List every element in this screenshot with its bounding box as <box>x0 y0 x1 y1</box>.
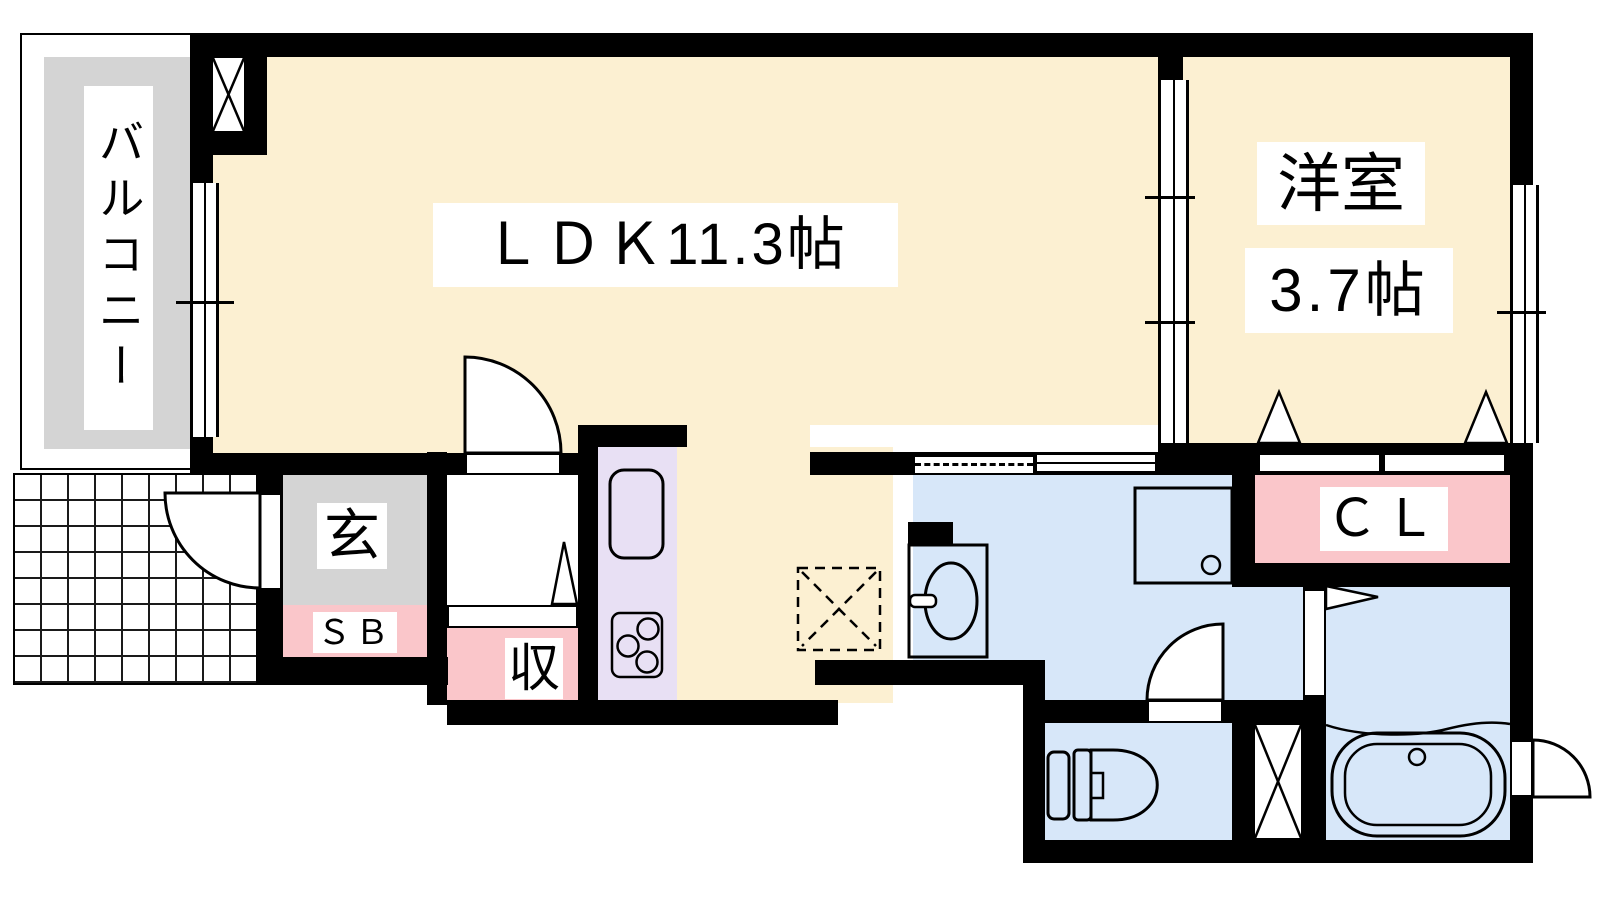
entry-door-slab <box>258 493 282 590</box>
window-balcony <box>190 183 219 437</box>
label-storage: 収 <box>505 638 563 699</box>
label-ldk: ＬＤＫ11.3帖 <box>433 203 898 287</box>
wall-toilet-west <box>1023 660 1045 863</box>
wall-genkan-east <box>427 452 447 705</box>
wall-south <box>1023 840 1533 863</box>
room-washroom <box>913 475 1232 660</box>
storage-door-triangle <box>552 542 577 604</box>
washroom-sliding-door <box>913 455 1035 475</box>
wall-ldk-south <box>447 700 838 725</box>
label-shoe-box: ＳＢ <box>313 612 397 653</box>
bath-exterior-door-arc <box>1533 740 1590 797</box>
room-washroom-east <box>1232 587 1303 700</box>
window-tick <box>1145 321 1195 324</box>
wall-partition-stub-top <box>1158 57 1183 82</box>
pipe-space-box-northwest <box>211 56 246 133</box>
wall-kitchen-west <box>578 425 598 705</box>
window-western-east <box>1510 185 1539 443</box>
room-ldk-lower-strip <box>213 425 578 455</box>
wall-vanity-south <box>815 660 1045 685</box>
bath-folding-door <box>1303 589 1326 697</box>
wall-washroom-pillar <box>908 522 953 545</box>
room-washroom-lower <box>1045 660 1232 702</box>
entrance-porch-tiles <box>13 473 258 685</box>
window-tick <box>176 301 234 304</box>
ldk-genkan-door-slab <box>465 453 561 475</box>
wall-closet-bath <box>1232 563 1533 587</box>
bath-exterior-door-slab <box>1510 740 1533 797</box>
closet-sliding-panel-left <box>1258 453 1381 473</box>
wall-north <box>190 33 1533 57</box>
storage-folding-door <box>447 605 578 628</box>
room-bath <box>1326 587 1510 840</box>
window-tick <box>1145 196 1195 199</box>
label-western-room: 洋室 <box>1257 142 1425 225</box>
pipe-space-box-southeast <box>1253 723 1303 840</box>
washroom-sliding-pocket <box>1035 453 1157 473</box>
window-partition-ldk-western <box>1158 80 1189 443</box>
wall-partition-stub-bottom <box>1158 440 1183 475</box>
window-tick <box>1497 311 1546 314</box>
label-western-room-size: 3.7帖 <box>1245 248 1453 333</box>
label-entrance: 玄 <box>317 503 387 569</box>
label-balcony: バルコニー <box>84 86 153 430</box>
label-closet: ＣＬ <box>1320 487 1448 551</box>
closet-sliding-panel-right <box>1383 453 1506 473</box>
kitchen-counter <box>598 447 677 703</box>
room-toilet <box>1045 723 1232 840</box>
wall-shoebox-south <box>258 657 448 685</box>
floor-plan: バルコニー ＬＤＫ11.3帖 洋室 3.7帖 玄 ＳＢ 収 ＣＬ <box>0 0 1600 900</box>
toilet-door-slab <box>1147 700 1223 723</box>
